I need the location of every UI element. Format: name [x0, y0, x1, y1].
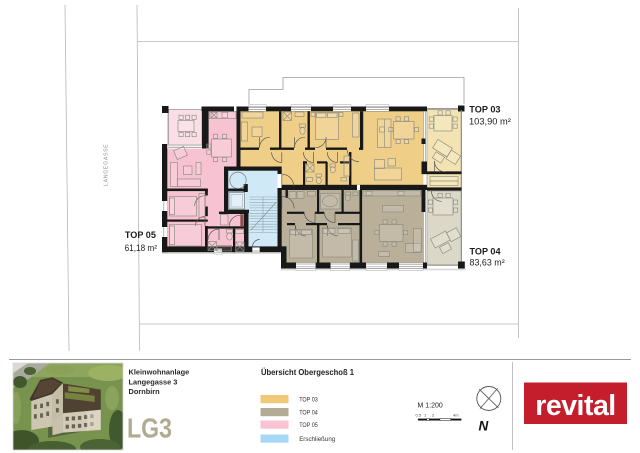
svg-text:61,18 m²: 61,18 m²	[125, 243, 157, 253]
svg-text:83,63 m²: 83,63 m²	[470, 258, 505, 268]
svg-text:0.5: 0.5	[416, 413, 422, 418]
svg-text:Langegasse 3: Langegasse 3	[129, 377, 178, 386]
svg-text:TOP 05: TOP 05	[125, 230, 156, 240]
svg-text:LG3: LG3	[127, 413, 172, 444]
svg-text:103,90 m²: 103,90 m²	[469, 117, 511, 127]
svg-text:Kleinwohnanlage: Kleinwohnanlage	[129, 368, 190, 377]
svg-text:revital: revital	[535, 390, 615, 422]
svg-text:TOP 04: TOP 04	[299, 409, 318, 416]
svg-text:TOP 03: TOP 03	[299, 396, 318, 403]
svg-text:TOP 03: TOP 03	[469, 105, 500, 115]
svg-text:TOP 04: TOP 04	[470, 247, 501, 257]
svg-text:LANGEGASSE: LANGEGASSE	[104, 144, 110, 186]
svg-text:Dornbirn: Dornbirn	[129, 387, 161, 396]
svg-text:4m: 4m	[453, 413, 459, 418]
svg-text:TOP 05: TOP 05	[299, 422, 318, 429]
svg-text:Übersicht Obergeschoß 1: Übersicht Obergeschoß 1	[261, 367, 354, 377]
svg-text:N: N	[479, 419, 489, 434]
svg-text:Erschließung: Erschließung	[299, 436, 335, 443]
svg-text:M 1:200: M 1:200	[418, 403, 443, 410]
